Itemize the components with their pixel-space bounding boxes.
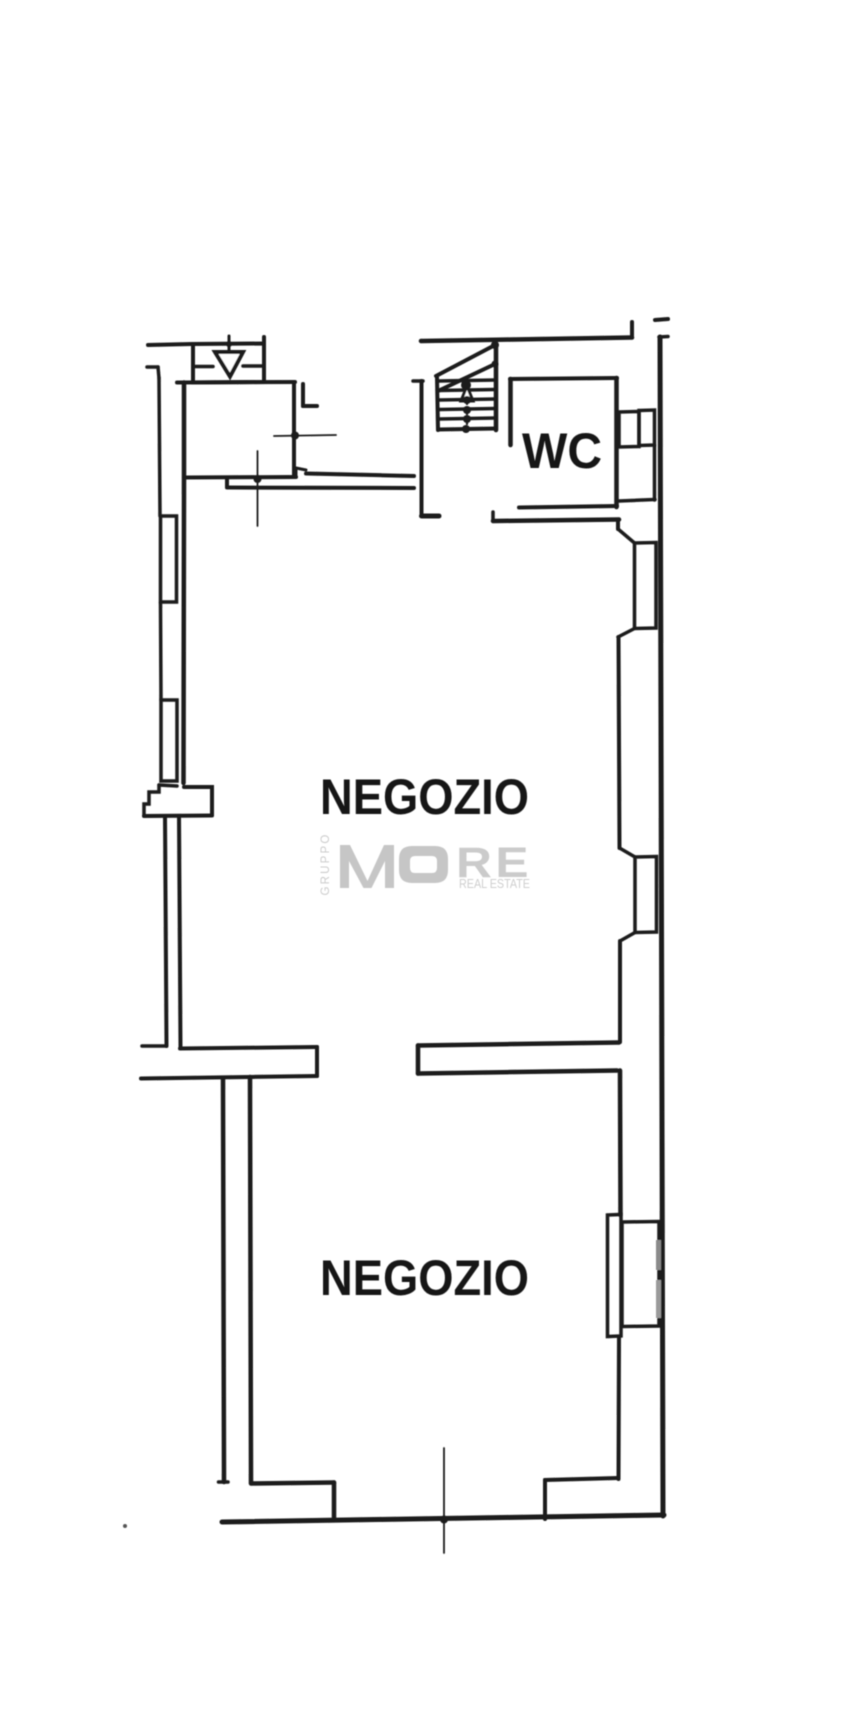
svg-text:REAL ESTATE: REAL ESTATE — [459, 877, 530, 891]
svg-text:NEGOZIO: NEGOZIO — [320, 769, 529, 825]
svg-text:GRUPPO: GRUPPO — [320, 832, 332, 895]
svg-text:WC: WC — [522, 423, 602, 479]
svg-text:NEGOZIO: NEGOZIO — [320, 1250, 529, 1306]
